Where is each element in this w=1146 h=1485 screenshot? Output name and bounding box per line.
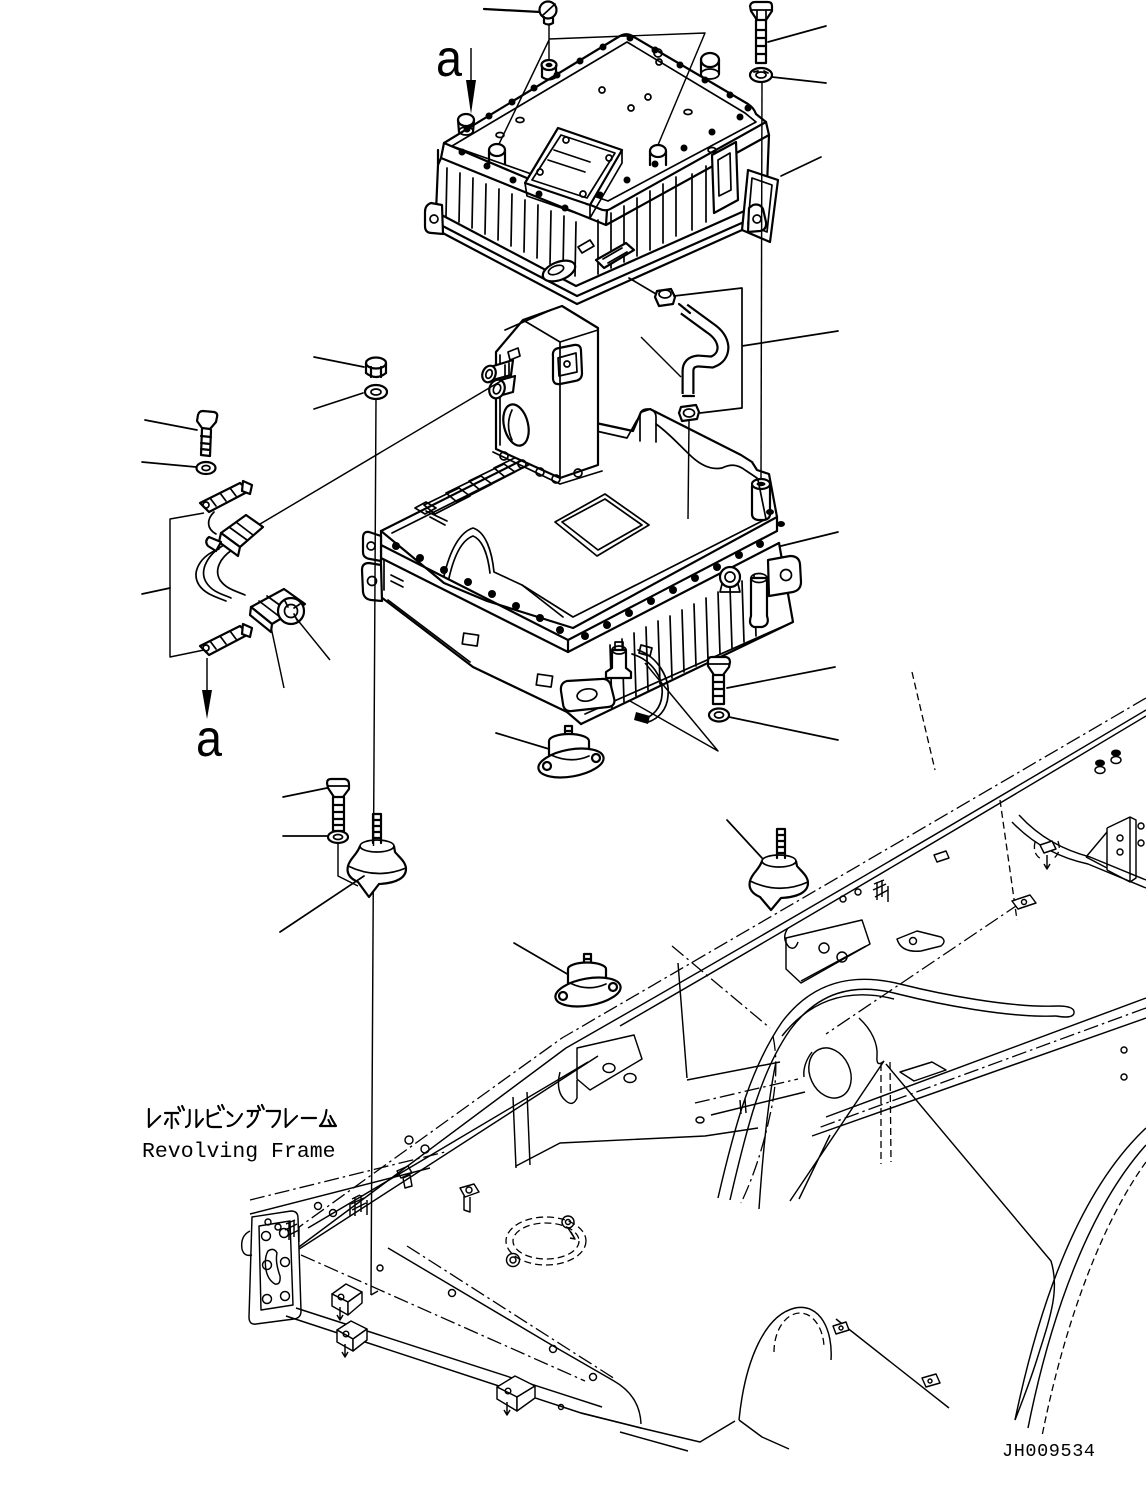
- svg-text:JH009534: JH009534: [1002, 1441, 1096, 1462]
- svg-text:Revolving Frame: Revolving Frame: [142, 1140, 336, 1164]
- svg-text:a: a: [196, 710, 222, 768]
- svg-text:a: a: [436, 30, 462, 88]
